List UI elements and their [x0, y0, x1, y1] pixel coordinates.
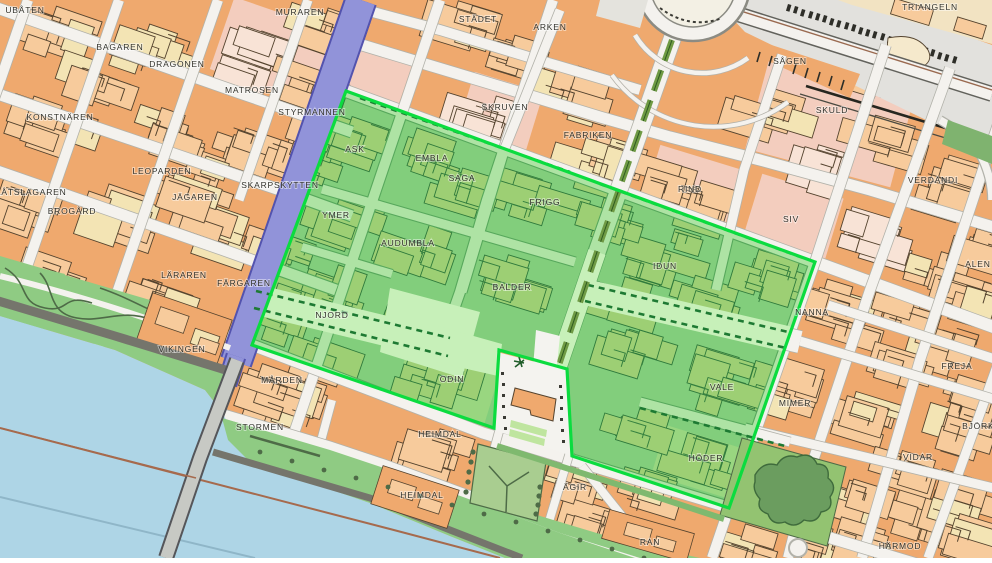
- svg-text:SIV: SIV: [783, 214, 799, 224]
- svg-text:JÄGAREN: JÄGAREN: [172, 192, 218, 202]
- svg-text:RAN: RAN: [640, 537, 660, 547]
- svg-text:VERDANDI: VERDANDI: [908, 175, 958, 185]
- svg-text:VIKINGEN: VIKINGEN: [158, 344, 205, 354]
- svg-text:ODIN: ODIN: [440, 374, 464, 384]
- svg-text:BAGAREN: BAGAREN: [96, 42, 143, 52]
- svg-text:HÄRMOD: HÄRMOD: [879, 541, 922, 551]
- svg-text:ÄGIR: ÄGIR: [563, 482, 587, 492]
- svg-text:MIMER: MIMER: [779, 398, 811, 408]
- svg-text:STYRMANNEN: STYRMANNEN: [278, 107, 346, 117]
- svg-text:HÖDER: HÖDER: [689, 453, 724, 463]
- svg-text:HEIMDAL: HEIMDAL: [418, 429, 461, 439]
- svg-text:MÅRDEN: MÅRDEN: [261, 375, 303, 385]
- svg-text:HEIMDAL: HEIMDAL: [400, 490, 443, 500]
- svg-text:SAGA: SAGA: [449, 173, 476, 183]
- svg-text:MATROSEN: MATROSEN: [225, 85, 279, 95]
- svg-text:PLÅTSLAGAREN: PLÅTSLAGAREN: [0, 187, 67, 197]
- svg-text:KONSTNÄREN: KONSTNÄREN: [26, 112, 93, 122]
- svg-text:SKARPSKYTTEN: SKARPSKYTTEN: [241, 180, 319, 190]
- svg-text:NANNA: NANNA: [795, 307, 829, 317]
- svg-text:BROGÅRD: BROGÅRD: [48, 206, 97, 216]
- svg-text:SÅGEN: SÅGEN: [773, 56, 807, 66]
- svg-text:NJORD: NJORD: [315, 310, 348, 320]
- svg-text:TRIANGELN: TRIANGELN: [902, 2, 958, 12]
- svg-text:STÄDET: STÄDET: [459, 14, 497, 24]
- svg-text:ASK: ASK: [345, 144, 364, 154]
- svg-text:RIND: RIND: [678, 184, 702, 194]
- svg-text:FREJA: FREJA: [942, 361, 973, 371]
- svg-text:BJÖRKEN: BJÖRKEN: [962, 421, 992, 431]
- svg-text:ALEN: ALEN: [965, 259, 990, 269]
- svg-text:BALDER: BALDER: [493, 282, 532, 292]
- svg-text:VALE: VALE: [710, 382, 734, 392]
- svg-text:LÄRAREN: LÄRAREN: [161, 270, 207, 280]
- svg-text:UBÅTEN: UBÅTEN: [5, 5, 44, 15]
- svg-text:FRIGG: FRIGG: [530, 197, 561, 207]
- svg-text:FÄRGAREN: FÄRGAREN: [217, 278, 271, 288]
- svg-text:FABRIKEN: FABRIKEN: [564, 130, 612, 140]
- svg-text:STORMEN: STORMEN: [236, 422, 284, 432]
- svg-text:SKRUVEN: SKRUVEN: [482, 102, 529, 112]
- svg-text:IDUN: IDUN: [653, 261, 677, 271]
- svg-text:VIDAR: VIDAR: [903, 452, 933, 462]
- svg-text:ARKEN: ARKEN: [533, 22, 566, 32]
- svg-text:SKULD: SKULD: [816, 105, 848, 115]
- svg-text:YMER: YMER: [322, 210, 350, 220]
- svg-text:MURAREN: MURAREN: [276, 7, 325, 17]
- svg-text:LEOPARDEN: LEOPARDEN: [132, 166, 191, 176]
- svg-text:AUDUMBLA: AUDUMBLA: [381, 238, 435, 248]
- svg-text:EMBLA: EMBLA: [416, 153, 449, 163]
- svg-text:DRAGONEN: DRAGONEN: [149, 59, 205, 69]
